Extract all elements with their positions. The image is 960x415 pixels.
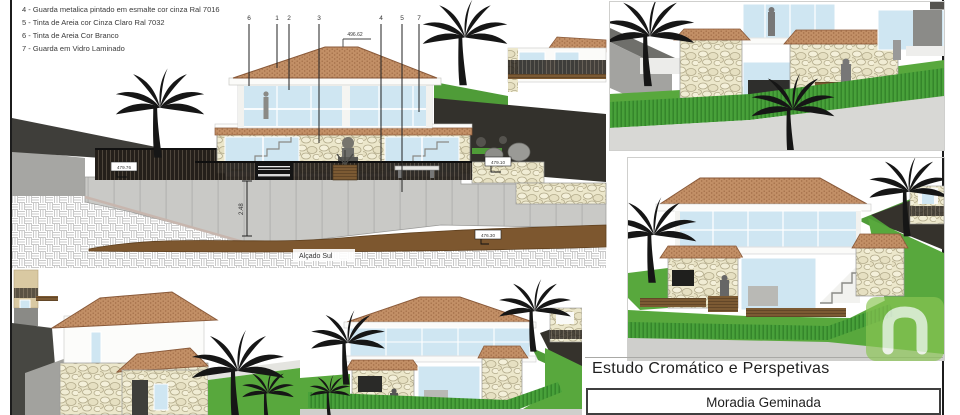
upper-floor-glass-wall bbox=[238, 84, 432, 128]
callout-numbers: 6 1 2 3 4 5 7 bbox=[247, 15, 421, 22]
svg-text:5: 5 bbox=[400, 15, 404, 22]
svg-text:Alçado Sul: Alçado Sul bbox=[299, 253, 333, 260]
svg-text:479.10: 479.10 bbox=[491, 160, 505, 165]
svg-text:476.30: 476.30 bbox=[481, 233, 495, 238]
planter-box bbox=[333, 150, 357, 180]
dimension-label: 2.48 bbox=[239, 203, 245, 215]
south-elevation-drawing: 2.48 496.62 479.76 479.10 476.30 6 1 2 3 bbox=[11, 0, 615, 270]
svg-text:7: 7 bbox=[417, 15, 421, 22]
perspective-render-bottom-left bbox=[12, 268, 300, 415]
drawing-sheet: 4 - Guarda metalica pintado em esmalte c… bbox=[0, 0, 960, 415]
palm-tree bbox=[423, 0, 508, 85]
svg-text:6: 6 bbox=[247, 15, 251, 22]
elevation-caption: Alçado Sul bbox=[293, 249, 355, 261]
ridge-level-marker: 496.62 bbox=[343, 32, 371, 47]
svg-text:1: 1 bbox=[275, 15, 279, 22]
house bbox=[52, 292, 217, 415]
bbq-counter bbox=[255, 163, 293, 180]
perspective-render-top-right bbox=[610, 2, 944, 150]
project-name-box: Moradia Geminada bbox=[586, 388, 941, 415]
svg-text:4: 4 bbox=[379, 15, 383, 22]
svg-text:496.62: 496.62 bbox=[347, 32, 363, 38]
watermark-n-icon bbox=[866, 297, 944, 361]
svg-text:479.76: 479.76 bbox=[117, 165, 131, 170]
perspective-render-bottom-middle bbox=[300, 278, 582, 415]
project-name: Moradia Geminada bbox=[706, 395, 821, 410]
hip-roof bbox=[229, 47, 441, 85]
main-house bbox=[215, 47, 472, 173]
svg-text:2: 2 bbox=[287, 15, 291, 22]
tower bbox=[14, 270, 58, 326]
watermark-logo bbox=[866, 297, 944, 361]
neighbor-house bbox=[508, 37, 606, 92]
study-title: Estudo Cromático e Perspetivas bbox=[592, 360, 830, 378]
svg-text:3: 3 bbox=[317, 15, 321, 22]
